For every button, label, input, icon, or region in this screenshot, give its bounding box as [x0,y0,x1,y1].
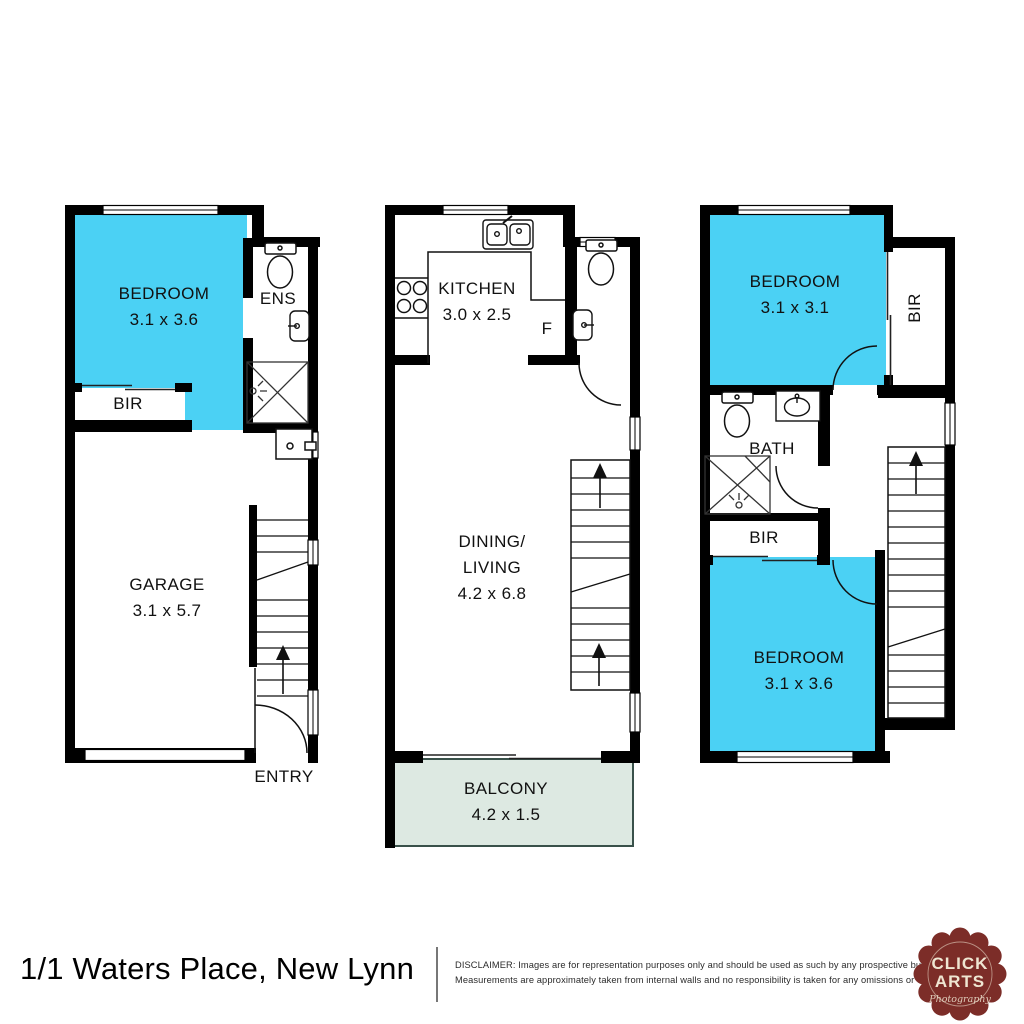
room-label-bath: BATH [749,436,795,462]
disclaimer-text: DISCLAIMER: Images are for representatio… [455,958,945,988]
stairs-up-arrow [276,645,290,660]
property-address: 1/1 Waters Place, New Lynn [20,951,414,987]
stairs-garage-level [257,520,308,696]
toilet-icon [586,240,617,285]
stairs-living-level [571,460,630,690]
photographer-logo-badge: CLICK ARTS Photography [912,926,1008,1022]
kitchen-sink-icon [483,216,533,249]
badge-title-line2: ARTS [935,972,985,991]
room-label-bir-side: BIR [902,293,928,323]
room-label-bedroom-3: BEDROOM3.1 x 3.6 [754,645,845,697]
badge-title-line1: CLICK [932,954,989,973]
toilet-icon [722,392,753,437]
room-label-bir-mid: BIR [749,525,779,551]
floorplan-sheet: BEDROOM3.1 x 3.6 ENS BIR GARAGE3.1 x 5.7… [0,0,1024,1024]
laundry-tub-icon [276,429,316,459]
basin-icon [573,310,594,340]
room-label-bedroom-1: BEDROOM3.1 x 3.6 [119,281,210,333]
shower-icon [705,456,770,514]
room-label-bedroom-2: BEDROOM3.1 x 3.1 [750,269,841,321]
basin-icon [288,311,309,341]
garage-door [85,750,245,761]
basin-icon [776,391,820,421]
stairs-up-arrow [909,451,923,466]
room-label-fridge: F [542,316,553,342]
room-label-entry: ENTRY [254,764,313,790]
stairs-up-arrow [592,643,606,658]
badge-tagline: Photography [928,994,991,1005]
shower-icon [247,362,308,423]
room-label-balcony: BALCONY4.2 x 1.5 [464,776,548,828]
floorplan-drawing [0,0,1024,1024]
room-label-garage: GARAGE3.1 x 5.7 [129,572,204,624]
stove-icon [398,282,427,313]
room-label-dining-living: DINING/ LIVING 4.2 x 6.8 [458,529,527,607]
room-label-ens: ENS [260,286,296,312]
stairs-bedroom-level [888,447,945,718]
room-label-kitchen: KITCHEN3.0 x 2.5 [438,276,515,328]
room-label-bir-1: BIR [113,391,143,417]
footer-divider [436,947,438,1002]
toilet-icon [265,243,296,288]
stairs-up-arrow [593,463,607,478]
